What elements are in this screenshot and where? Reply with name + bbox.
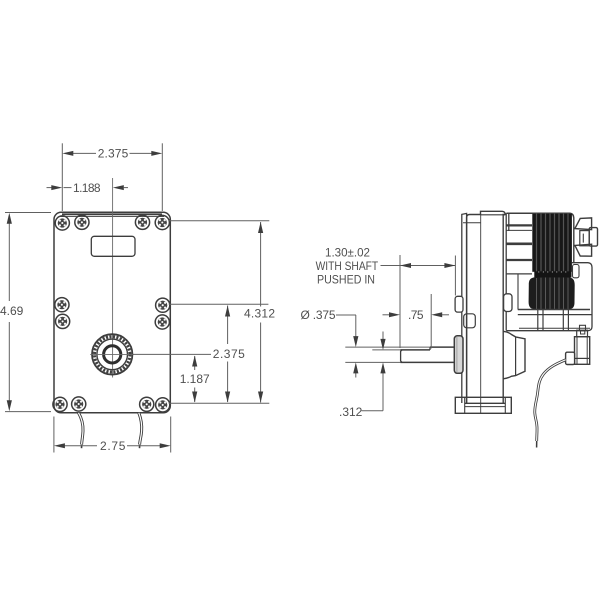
svg-text:1.187: 1.187 xyxy=(180,372,210,386)
svg-text:.312: .312 xyxy=(339,405,363,419)
svg-text:1.30±.02: 1.30±.02 xyxy=(325,246,370,260)
svg-text:2.75: 2.75 xyxy=(100,439,126,453)
svg-text:WITH SHAFT: WITH SHAFT xyxy=(316,259,379,273)
svg-text:4.312: 4.312 xyxy=(244,306,275,320)
svg-text:2.375: 2.375 xyxy=(98,147,129,161)
svg-text:PUSHED IN: PUSHED IN xyxy=(317,272,375,286)
svg-text:1.188: 1.188 xyxy=(73,181,101,195)
svg-text:2.375: 2.375 xyxy=(213,347,245,361)
svg-text:4.69: 4.69 xyxy=(0,304,24,318)
svg-text:.75: .75 xyxy=(408,308,424,322)
svg-text:Ø .375: Ø .375 xyxy=(301,308,336,322)
